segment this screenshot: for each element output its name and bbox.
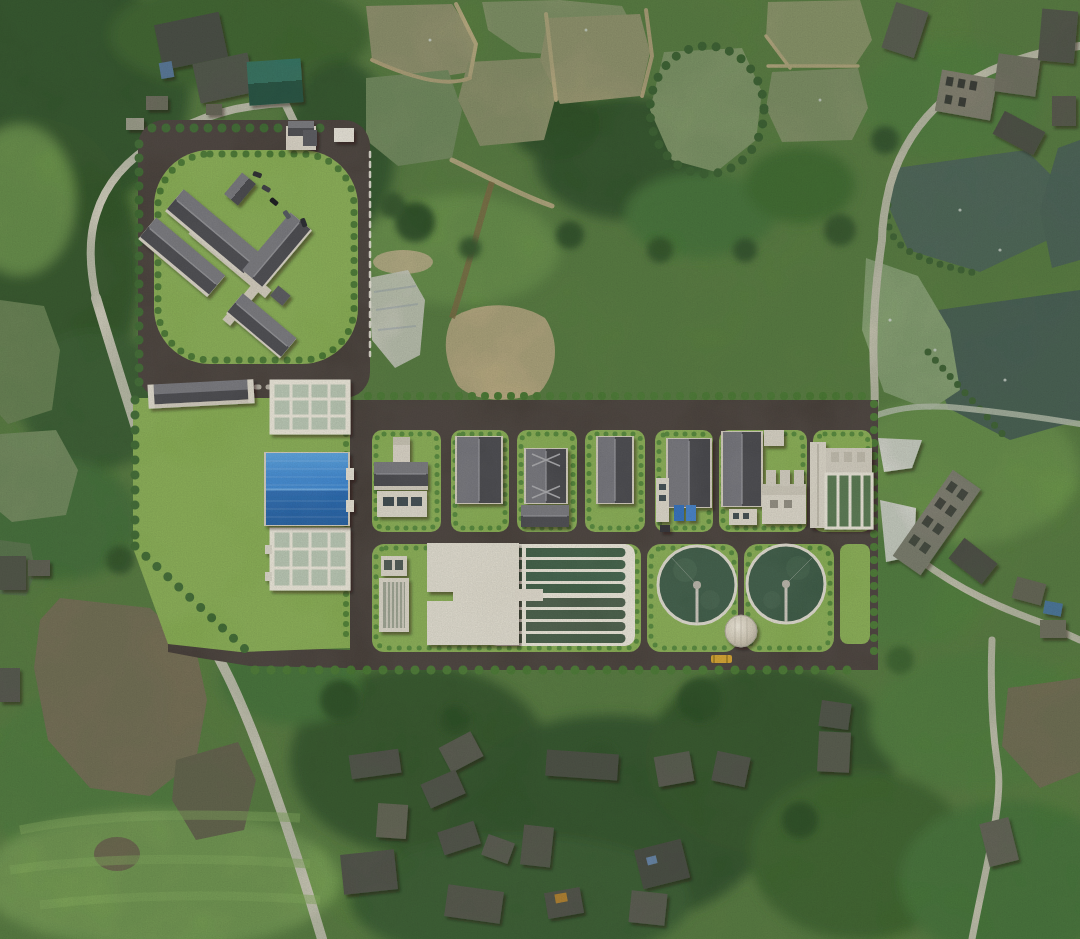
photo-haze [0,0,1080,939]
aerial-site-plan [0,0,1080,939]
